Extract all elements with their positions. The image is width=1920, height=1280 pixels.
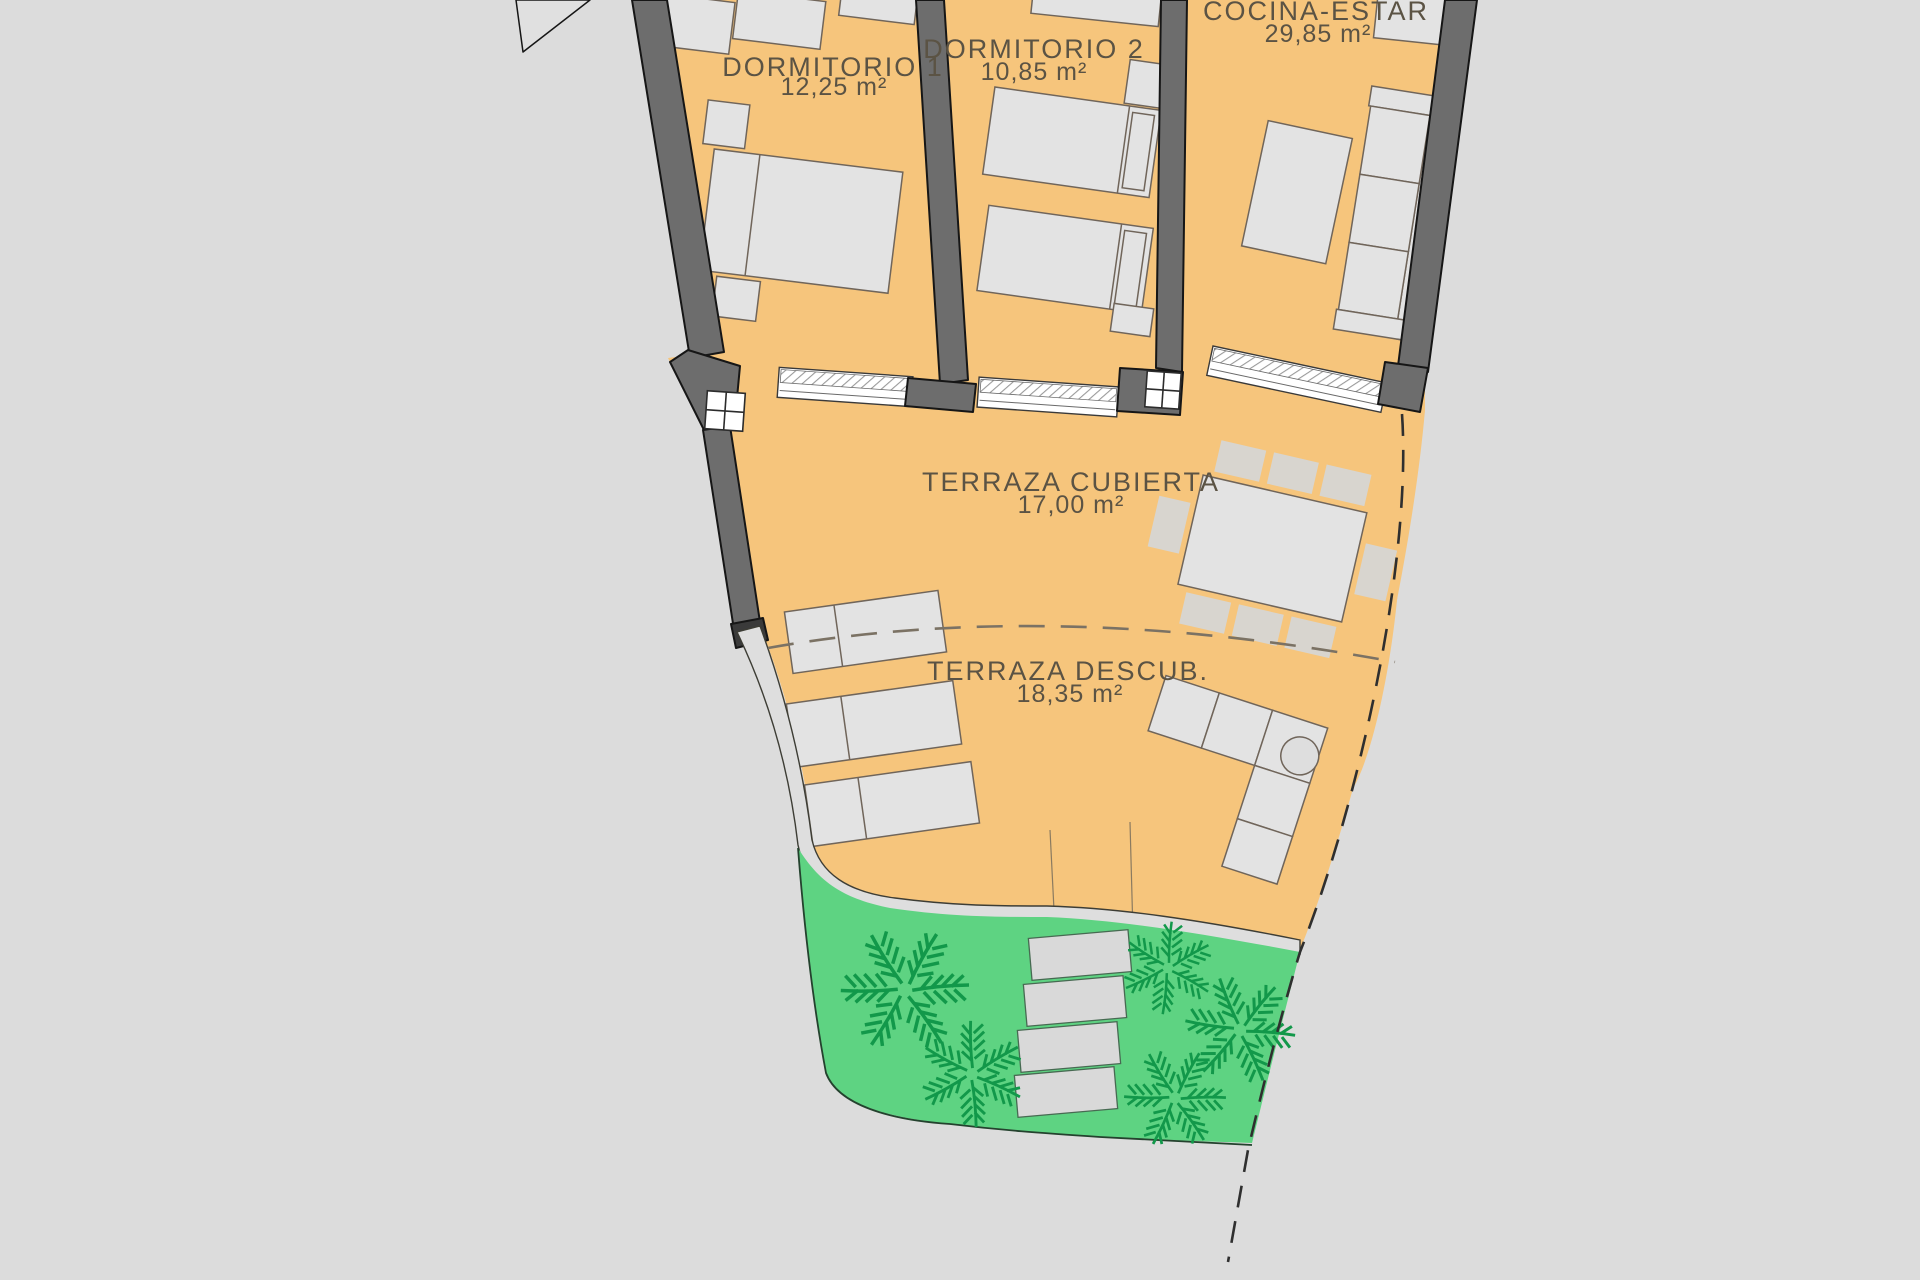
floor-plan: DORMITORIO 1 12,25 m² DORMITORIO 2 10,85… (0, 0, 1920, 1280)
room-area-label: 17,00 m² (1018, 491, 1125, 519)
stepping-stone (1023, 976, 1126, 1027)
wall-pier (905, 378, 976, 412)
wall-divider-2 (1156, 0, 1187, 372)
floor-plan-page: DORMITORIO 1 12,25 m² DORMITORIO 2 10,85… (0, 0, 1920, 1280)
wall-corner-right (1378, 362, 1428, 412)
stepping-stone (1028, 930, 1131, 981)
room-area-label: 12,25 m² (781, 73, 888, 101)
nightstand (1110, 303, 1154, 336)
room-area-label: 29,85 m² (1265, 20, 1372, 48)
stepping-stone (1014, 1067, 1117, 1118)
room-area-label: 18,35 m² (1017, 680, 1124, 708)
room-area-label: 10,85 m² (981, 58, 1088, 86)
stepping-stone (1017, 1022, 1120, 1073)
